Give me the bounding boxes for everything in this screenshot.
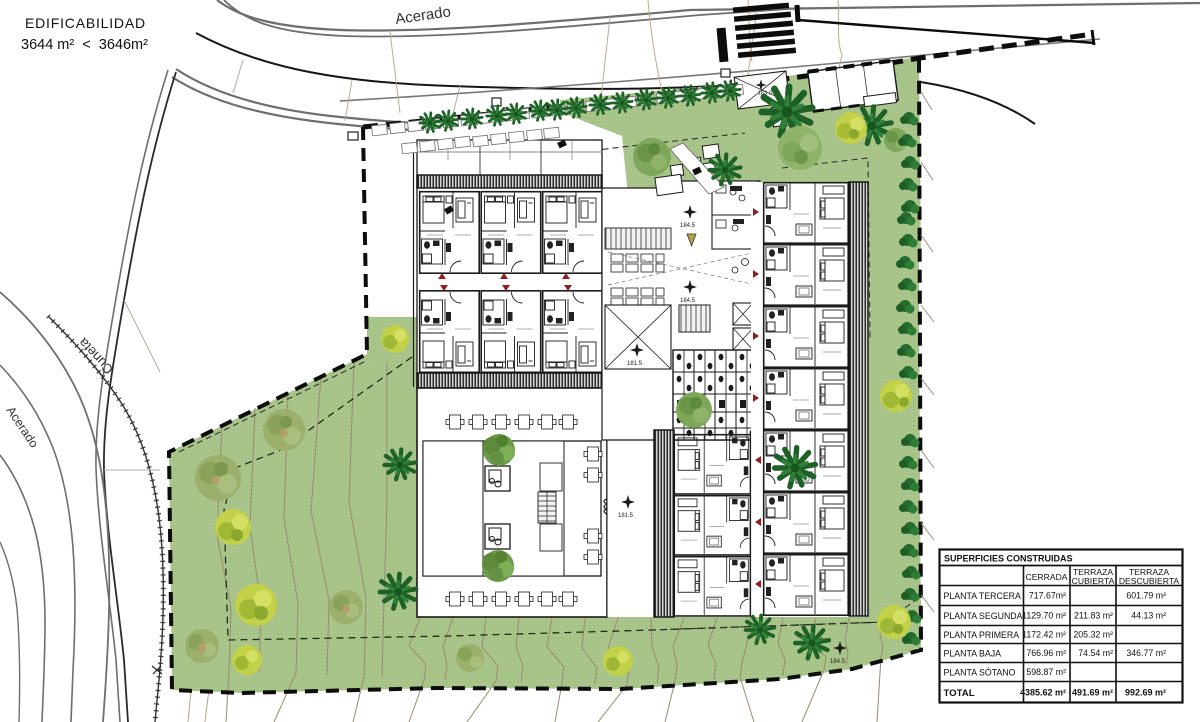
svg-text:181.5: 181.5 — [618, 513, 634, 519]
svg-text:1172.42 m²: 1172.42 m² — [1022, 630, 1066, 640]
svg-text:346.77 m²: 346.77 m² — [1126, 648, 1166, 658]
svg-text:PLANTA TERCERA: PLANTA TERCERA — [944, 591, 1022, 601]
svg-text:601.79 m²: 601.79 m² — [1126, 591, 1166, 601]
svg-text:4385.62 m²: 4385.62 m² — [1020, 688, 1066, 698]
svg-text:184.5: 184.5 — [680, 223, 696, 229]
svg-text:205.32 m²: 205.32 m² — [1073, 630, 1113, 640]
svg-text:717.67m²: 717.67m² — [1029, 591, 1066, 601]
svg-text:PLANTA BAJA: PLANTA BAJA — [944, 649, 1002, 659]
svg-text:181.5: 181.5 — [627, 361, 643, 367]
svg-text:598.87 m²: 598.87 m² — [1026, 667, 1066, 677]
svg-text:183.0: 183.0 — [758, 91, 772, 97]
svg-text:184.5: 184.5 — [830, 659, 846, 665]
svg-text:SUPERFICIES CONSTRUIDAS: SUPERFICIES CONSTRUIDAS — [944, 554, 1073, 564]
svg-text:992.69 m²: 992.69 m² — [1125, 688, 1166, 698]
svg-text:CUBIERTA: CUBIERTA — [1072, 576, 1115, 586]
svg-text:491.69 m²: 491.69 m² — [1072, 688, 1113, 698]
svg-text:211.83 m²: 211.83 m² — [1074, 611, 1113, 621]
svg-text:PLANTA PRIMERA: PLANTA PRIMERA — [944, 630, 1020, 640]
svg-text:TOTAL: TOTAL — [944, 688, 975, 699]
svg-text:PLANTA SEGUNDA: PLANTA SEGUNDA — [944, 611, 1023, 621]
svg-text:44.13 m²: 44.13 m² — [1131, 611, 1166, 621]
svg-text:766.96 m²: 766.96 m² — [1026, 648, 1066, 658]
svg-text:CERRADA: CERRADA — [1025, 572, 1067, 582]
svg-text:1129.70 m²: 1129.70 m² — [1022, 611, 1066, 621]
svg-text:PLANTA SÓTANO: PLANTA SÓTANO — [944, 668, 1016, 678]
svg-text:184.5: 184.5 — [680, 298, 696, 304]
svg-text:EDIFICABILIDAD: EDIFICABILIDAD — [25, 15, 146, 31]
svg-text:3644 m² < 3646m²: 3644 m² < 3646m² — [21, 37, 148, 53]
svg-text:74.54 m²: 74.54 m² — [1078, 648, 1113, 658]
svg-text:DESCUBIERTA: DESCUBIERTA — [1119, 576, 1180, 586]
